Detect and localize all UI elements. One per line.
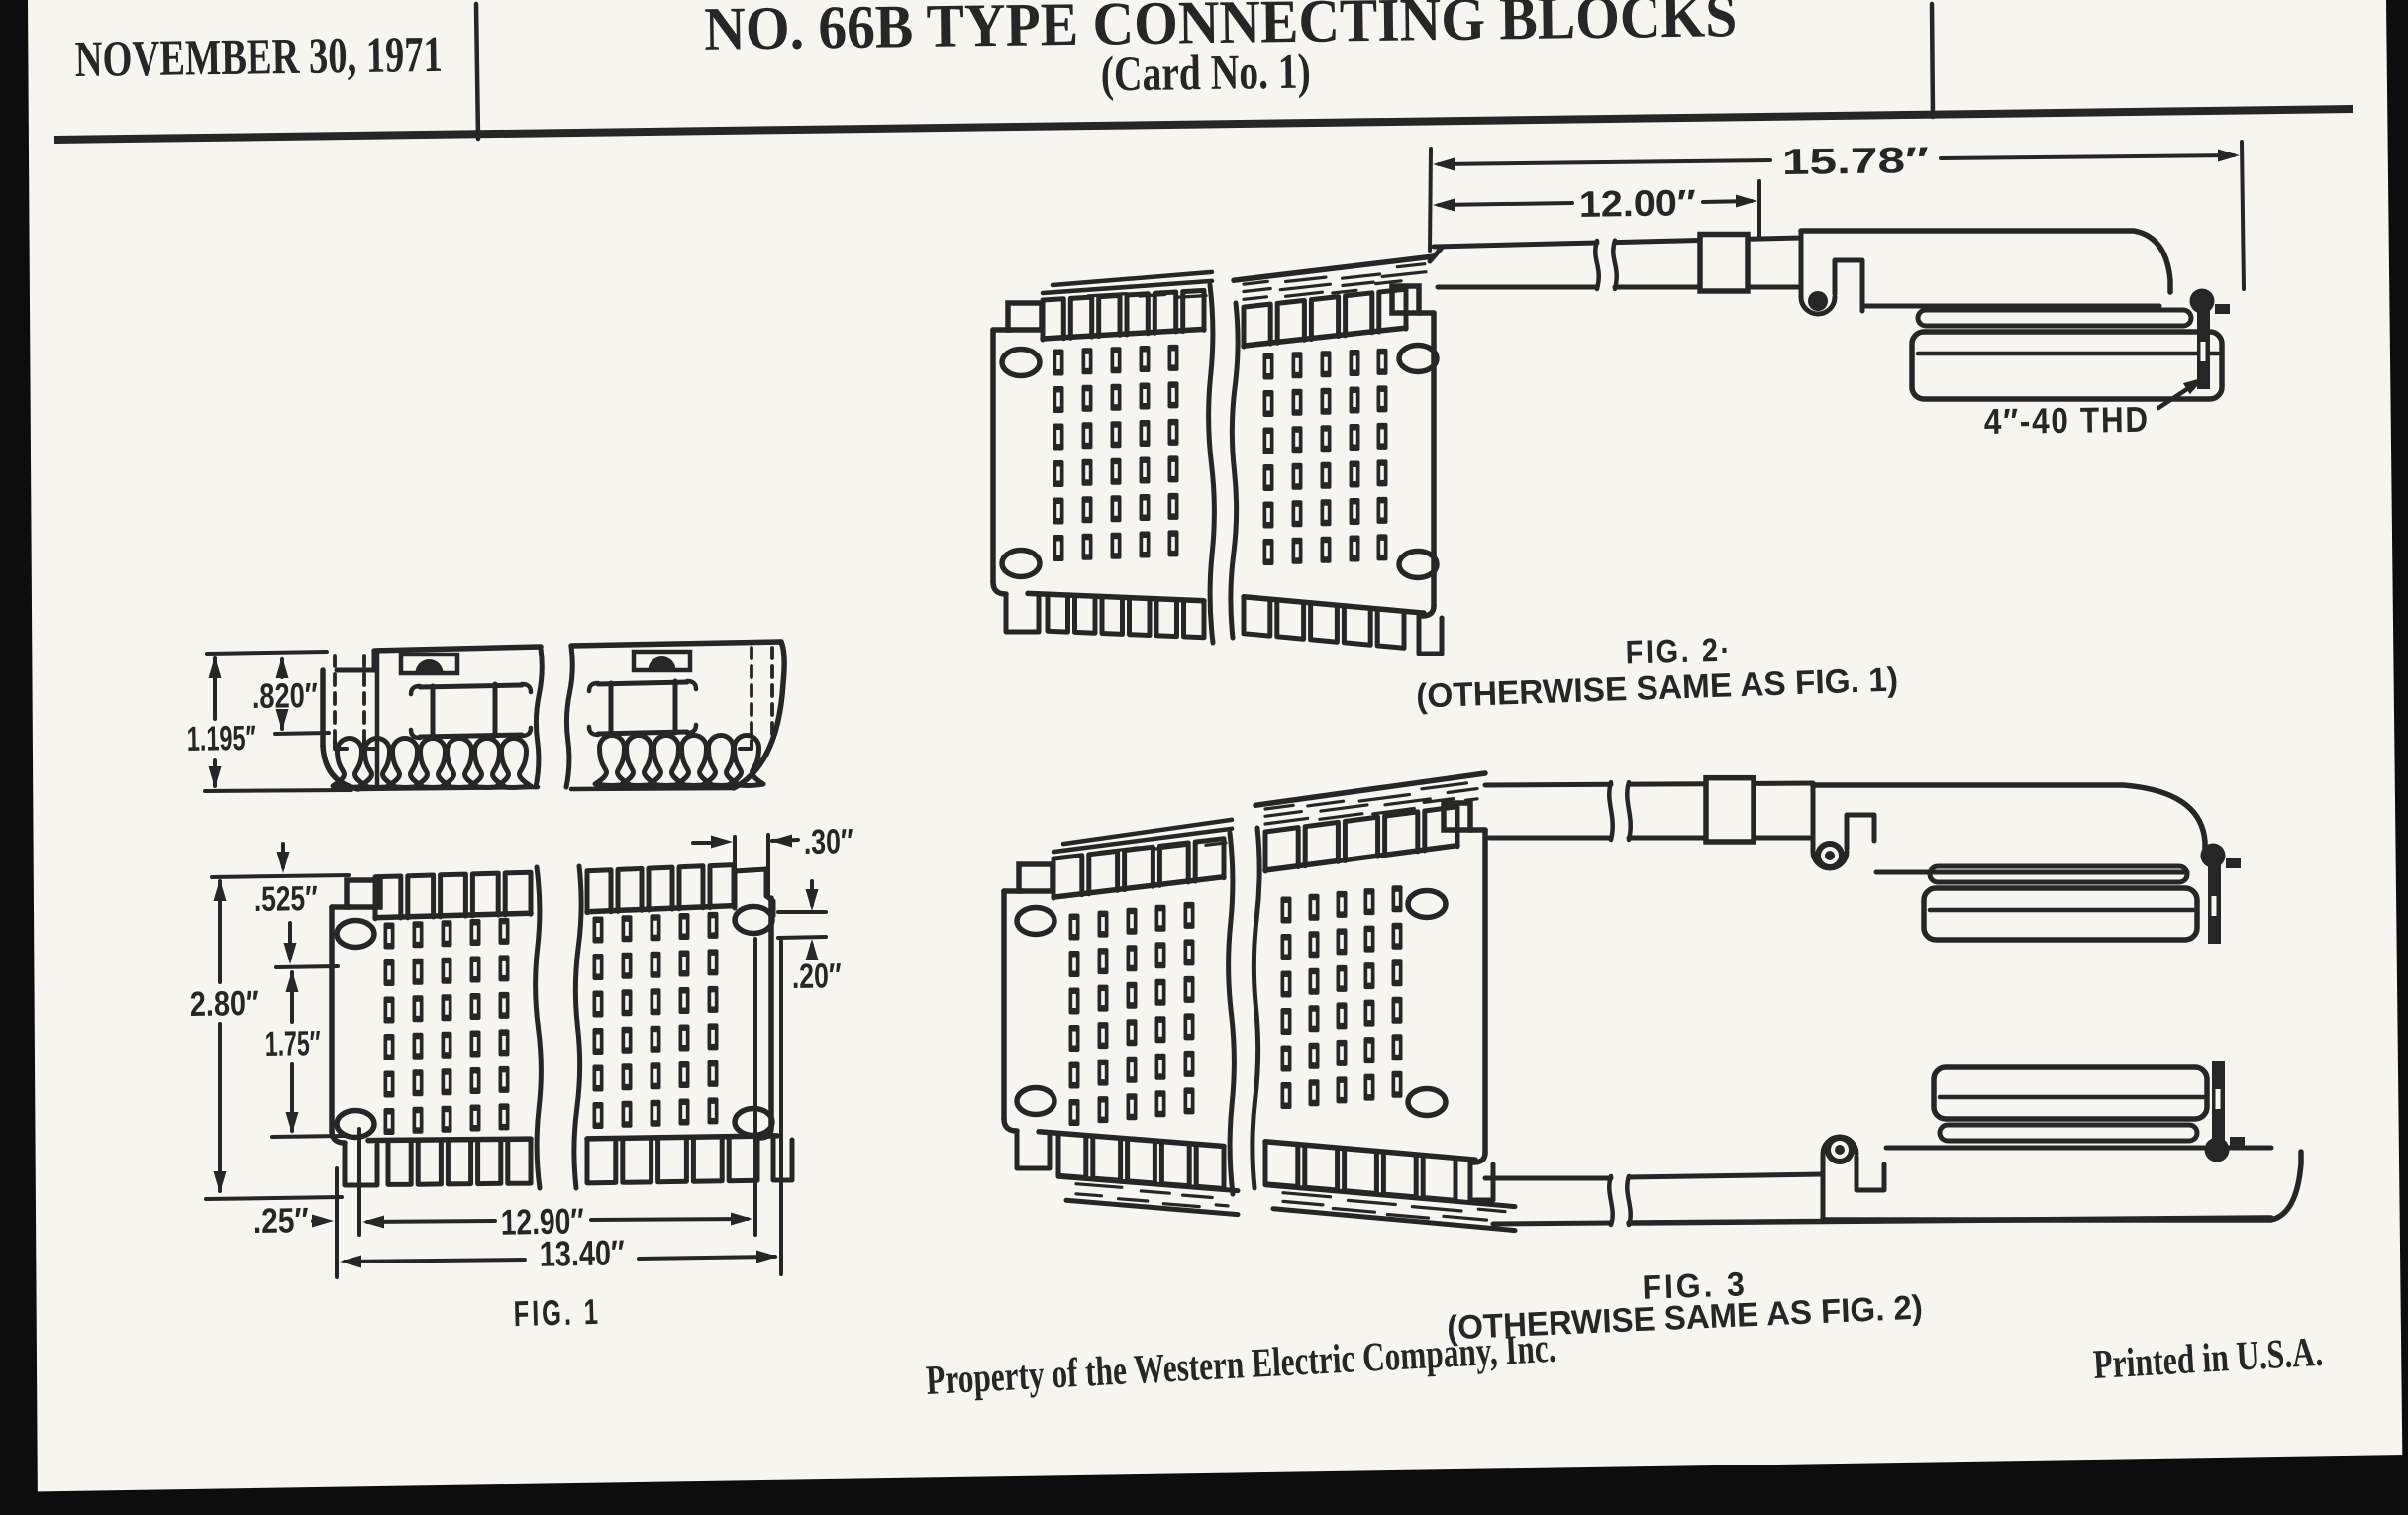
svg-text:4″-40 THD: 4″-40 THD — [1984, 399, 2151, 442]
svg-text:(Card No. 1): (Card No. 1) — [1100, 44, 1311, 102]
svg-text:1.195″: 1.195″ — [186, 719, 256, 758]
svg-text:FIG. 1: FIG. 1 — [513, 1291, 601, 1334]
svg-text:2.80″: 2.80″ — [189, 984, 259, 1024]
svg-text:.30″: .30″ — [803, 822, 853, 861]
svg-text:FIG. 2·: FIG. 2· — [1625, 632, 1733, 672]
svg-text:.820″: .820″ — [251, 676, 318, 716]
svg-text:12.00″: 12.00″ — [1579, 182, 1697, 225]
svg-text:13.40″: 13.40″ — [539, 1232, 625, 1273]
svg-text:.525″: .525″ — [253, 879, 318, 919]
svg-text:15.78″: 15.78″ — [1782, 140, 1930, 182]
svg-text:NOVEMBER 30, 1971: NOVEMBER 30, 1971 — [74, 27, 443, 88]
svg-text:1.75″: 1.75″ — [264, 1024, 321, 1063]
svg-text:.25″: .25″ — [252, 1201, 309, 1241]
svg-text:.20″: .20″ — [791, 957, 842, 996]
